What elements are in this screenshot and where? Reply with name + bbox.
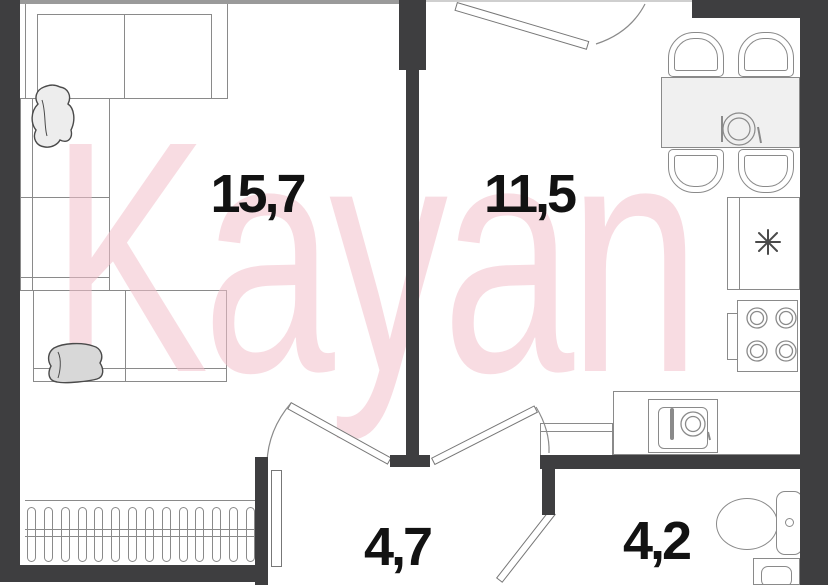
kitchen-area-label: 11,5 — [484, 163, 574, 225]
living-room-door-arc — [267, 403, 291, 463]
floor-plan: Kayan — [0, 0, 828, 585]
living-bottom-wall — [0, 565, 268, 582]
living-room-area-label: 15,7 — [210, 163, 303, 225]
right-wall — [800, 0, 828, 585]
bathroom-area-label: 4,2 — [623, 510, 689, 572]
sofa-blanket — [32, 85, 74, 147]
balcony-door-arc — [596, 4, 645, 44]
bed-pillow — [49, 344, 103, 383]
kitchen-door-arc — [536, 407, 549, 453]
plate-inner — [728, 118, 750, 140]
knife — [758, 127, 761, 143]
hallway-area-label: 4,7 — [364, 516, 430, 578]
stove-burners — [747, 308, 796, 361]
door-leaf-hallway-wall — [271, 470, 282, 567]
living-top-wall-line — [20, 0, 400, 4]
left-wall — [0, 0, 20, 582]
interior-wall-top — [399, 0, 426, 70]
interior-wall-cap — [390, 455, 430, 467]
sink-faucet — [672, 410, 710, 440]
snowflake-icon — [756, 230, 780, 254]
bathroom-top-wall — [540, 455, 802, 469]
interior-wall — [406, 70, 419, 460]
balcony-opening-line — [426, 0, 692, 2]
hallway-left-wall — [255, 457, 268, 585]
bathroom-door-stub — [542, 469, 555, 515]
